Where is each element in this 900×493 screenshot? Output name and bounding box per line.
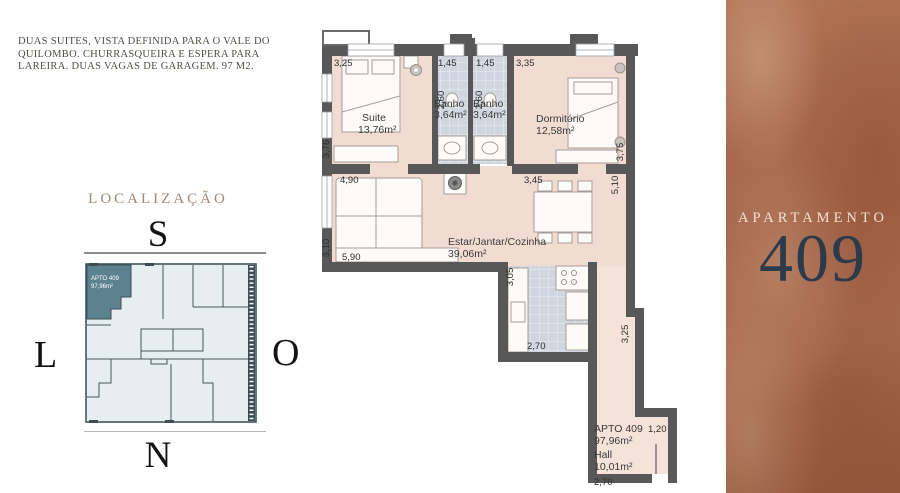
dormitorio-name: Dormitório (536, 113, 585, 125)
dim-banho1-depth: 2,60 (436, 91, 447, 110)
dim-banho2-top: 1,45 (476, 58, 495, 69)
dim-banho2-depth: 2,60 (474, 91, 485, 110)
dim-kitchen-left: 3,05 (505, 268, 516, 287)
dim-kitchen-bottom: 2,70 (527, 341, 546, 352)
dim-dorm-right: 3,75 (615, 143, 626, 162)
dim-living-top-right: 3,45 (524, 175, 543, 186)
hall-area: 10,01m² (594, 461, 633, 473)
suite-area: 13,76m² (358, 124, 397, 136)
dorm-dresser (556, 150, 618, 163)
dim-hall-top-right: 1,20 (648, 424, 667, 435)
dim-suite-left: 3,76 (321, 140, 332, 159)
brochure-page: DUAS SUITES, VISTA DEFINIDA PARA O VALE … (0, 0, 900, 493)
suite-dresser (334, 146, 398, 162)
dim-suite-top: 3,25 (334, 58, 353, 69)
oven (566, 324, 590, 350)
dim-corridor-right: 3,25 (620, 325, 631, 344)
banho2-area: 3,64m² (473, 109, 506, 121)
panel-number: 409 (726, 224, 900, 292)
dim-living-right: 5,10 (610, 176, 621, 195)
sofa (336, 178, 422, 256)
dim-dorm-top: 3,35 (516, 58, 535, 69)
terrace-parapet (323, 31, 369, 45)
dim-living-top-left: 4,90 (340, 175, 359, 186)
hall-apto: APTO 409 (594, 423, 643, 435)
banho1-area: 3,64m² (434, 109, 467, 121)
ac-unit (615, 63, 625, 73)
dim-living-left: 3,10 (321, 239, 332, 258)
hall-apto-area: 97,96m² (594, 435, 633, 447)
estar-area: 39,06m² (448, 248, 487, 260)
dim-living-bottom: 5,90 (342, 252, 361, 263)
dormitorio-area: 12,58m² (536, 125, 575, 137)
dim-banho1-top: 1,45 (438, 58, 457, 69)
kitchen-sink (511, 302, 525, 322)
hall-name: Hall (594, 449, 612, 461)
suite-name: Suite (362, 112, 386, 124)
cooktop (556, 266, 590, 290)
dining-table (534, 192, 592, 232)
estar-name: Estar/Jantar/Cozinha (448, 236, 546, 248)
dim-hall-bottom: 2,70 (594, 477, 613, 488)
apartment-panel: APARTAMENTO 409 (726, 0, 900, 493)
fridge (566, 292, 590, 320)
